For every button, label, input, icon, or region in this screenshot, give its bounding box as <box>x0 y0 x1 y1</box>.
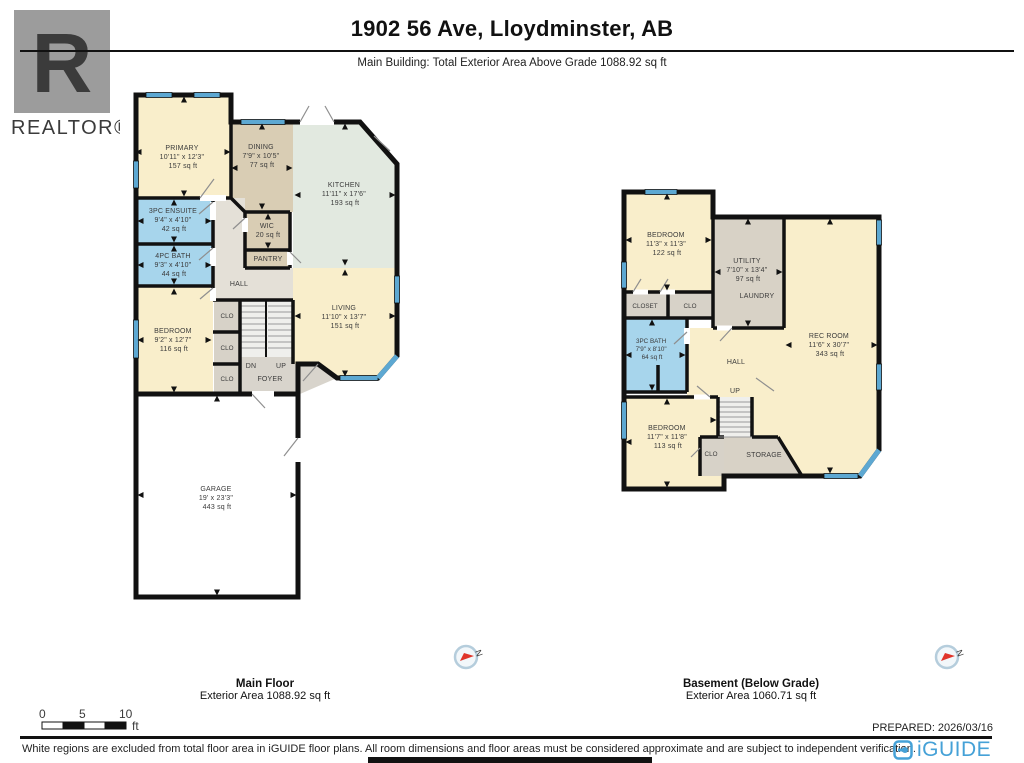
realtor-logo-text: REALTOR® <box>11 117 120 139</box>
prepared-date: PREPARED: 2026/03/16 <box>700 722 993 734</box>
label-hall: HALL <box>230 281 248 288</box>
label-up: UP <box>276 363 286 370</box>
room-hall-2 <box>245 268 293 300</box>
page-title: 1902 56 Ave, Lloydminster, AB <box>0 16 1024 42</box>
scale-unit: ft <box>132 719 139 733</box>
label-bedroom: BEDROOM 9'2" x 12'7" 116 sq ft <box>154 328 194 353</box>
label-dn: DN <box>246 363 257 370</box>
main-floor-name: Main Floor <box>236 678 294 690</box>
iguide-logo-text: iGUIDE <box>917 738 991 762</box>
disclaimer-text: White regions are excluded from total fl… <box>22 743 916 755</box>
main-floor-caption: Main Floor Exterior Area 1088.92 sq ft <box>145 678 385 702</box>
scale-bar: 0 5 10 ft <box>35 706 165 740</box>
scale-tick-0: 0 <box>39 707 46 721</box>
stair-treads-basement <box>719 402 751 432</box>
compass-icon: N <box>448 640 492 674</box>
basement-caption: Basement (Below Grade) Exterior Area 106… <box>631 678 871 702</box>
label-b-hall: HALL <box>727 359 745 366</box>
label-b-laundry: LAUNDRY <box>740 293 775 300</box>
basement-name: Basement (Below Grade) <box>683 678 819 690</box>
scale-tick-5: 5 <box>79 707 86 721</box>
compass-icon-2: N <box>929 640 973 674</box>
label-pantry: PANTRY <box>254 256 283 263</box>
header-rule <box>20 50 1014 52</box>
label-garage: GARAGE 19' x 23'3" 443 sq ft <box>199 486 235 511</box>
label-b-storage: STORAGE <box>746 452 782 459</box>
label-b-up: UP <box>730 388 740 395</box>
label-foyer: FOYER <box>257 376 282 383</box>
label-clo-1: CLO <box>221 313 234 320</box>
floorplan-basement: BEDROOM 11'3" x 11'3" 122 sq ft UTILITY … <box>610 182 902 504</box>
floorplan-main-floor: PRIMARY 10'11" x 12'3" 157 sq ft DINING … <box>128 86 414 606</box>
floor-plan-page: { "header": { "title": "1902 56 Ave, Llo… <box>0 0 1024 763</box>
label-clo-3: CLO <box>221 376 234 383</box>
basement-area: Exterior Area 1060.71 sq ft <box>686 690 816 702</box>
iguide-logo: iGUIDE <box>893 738 993 762</box>
scale-tick-10: 10 <box>119 707 133 721</box>
page-subtitle: Main Building: Total Exterior Area Above… <box>0 57 1024 69</box>
main-floor-area: Exterior Area 1088.92 sq ft <box>200 690 330 702</box>
label-clo-2: CLO <box>221 345 234 352</box>
label-b-clo: CLO <box>684 303 697 310</box>
label-b-clo2: CLO <box>705 451 718 458</box>
footer-rule <box>20 736 992 739</box>
bottom-bar <box>368 757 652 763</box>
iguide-logo-icon <box>893 740 913 760</box>
label-b-closet: CLOSET <box>632 303 657 310</box>
